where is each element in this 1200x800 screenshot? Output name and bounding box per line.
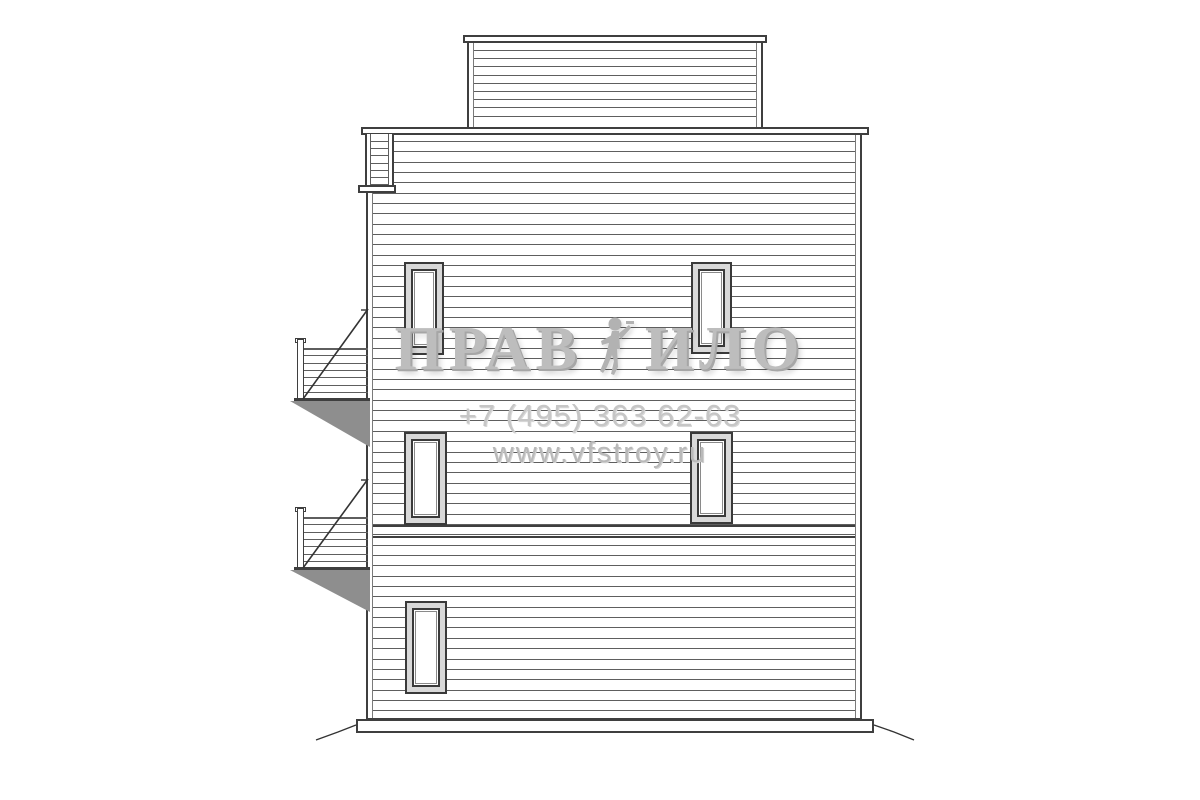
- window-sash: [411, 269, 437, 348]
- siding-line: [373, 358, 855, 359]
- siding-line: [373, 193, 855, 194]
- siding-line: [373, 162, 855, 163]
- balcony-underside-shade: [290, 570, 370, 612]
- siding-line: [373, 182, 855, 183]
- siding-line: [373, 276, 855, 277]
- siding-line: [373, 203, 855, 204]
- corner-trim-right: [756, 42, 757, 128]
- roof-deck-section-cap: [463, 35, 767, 43]
- balcony-rail-line: [304, 561, 368, 562]
- corner-trim-right: [855, 134, 856, 718]
- balcony-post: [297, 508, 304, 570]
- siding-line: [474, 107, 756, 108]
- ladder-ledge: [358, 185, 396, 193]
- siding-line: [474, 58, 756, 59]
- window-sash: [698, 269, 725, 347]
- siding-line: [373, 710, 855, 711]
- balcony-rail-line: [304, 392, 368, 393]
- siding-line: [373, 151, 855, 152]
- ladder-rung: [371, 163, 388, 164]
- siding-line: [373, 234, 855, 235]
- roof-ladder: [365, 134, 394, 190]
- siding-line: [373, 224, 855, 225]
- siding-line: [373, 317, 855, 318]
- window: [690, 432, 733, 524]
- balcony-rail-line: [304, 546, 368, 547]
- ground-line: [316, 725, 356, 740]
- window-sash: [412, 608, 440, 687]
- siding-line: [373, 244, 855, 245]
- siding-line: [373, 534, 855, 535]
- siding-line: [373, 369, 855, 370]
- balcony-underside-shade: [290, 401, 370, 447]
- balcony-rail-line: [304, 348, 368, 350]
- siding-line: [373, 565, 855, 566]
- balcony-rail-line: [304, 539, 368, 540]
- window: [691, 262, 732, 354]
- ladder-rung: [371, 148, 388, 149]
- ladder-rung: [371, 141, 388, 142]
- balcony-rail-line: [304, 363, 368, 364]
- siding-line: [474, 91, 756, 92]
- siding-line: [373, 410, 855, 411]
- siding-line: [474, 50, 756, 51]
- balcony-rail-line: [304, 385, 368, 386]
- siding-line: [373, 255, 855, 256]
- siding-line: [373, 576, 855, 577]
- ladder-rail-left: [370, 134, 371, 190]
- balcony-rail-line: [304, 532, 368, 533]
- siding-line: [373, 379, 855, 380]
- window-sash: [411, 439, 440, 518]
- balcony-rail-line: [304, 377, 368, 378]
- siding-line: [474, 99, 756, 100]
- window: [404, 432, 447, 525]
- ladder-rung: [371, 177, 388, 178]
- balcony-floor: [294, 567, 370, 570]
- roof-deck-section: [467, 42, 763, 128]
- siding-line: [373, 338, 855, 339]
- siding-line: [373, 327, 855, 328]
- balcony-rail-line: [304, 554, 368, 555]
- foundation-base: [356, 719, 874, 733]
- siding-line: [373, 307, 855, 308]
- siding-line: [373, 420, 855, 421]
- ladder-rung: [371, 170, 388, 171]
- balcony-rail-line: [304, 355, 368, 356]
- main-wall-cap: [361, 127, 869, 135]
- siding-line: [373, 596, 855, 597]
- siding-line: [373, 389, 855, 390]
- floor-band-line: [373, 536, 855, 538]
- siding-line: [474, 75, 756, 76]
- floor-band-line: [373, 525, 855, 527]
- window-sash: [697, 439, 726, 517]
- siding-line: [373, 286, 855, 287]
- window: [405, 601, 447, 694]
- siding-line: [373, 296, 855, 297]
- ground-line: [874, 725, 914, 740]
- balcony-post: [297, 339, 304, 401]
- siding-line: [373, 700, 855, 701]
- siding-line: [373, 400, 855, 401]
- balcony-floor: [294, 398, 370, 401]
- siding-line: [474, 116, 756, 117]
- siding-line: [373, 141, 855, 142]
- elevation-drawing: ПРАВ ИЛО +7 (495) 363 62-63 www.vfstroy.…: [0, 0, 1200, 800]
- balcony-rail-line: [304, 517, 368, 519]
- siding-line: [373, 213, 855, 214]
- siding-line: [373, 545, 855, 546]
- siding-line: [373, 172, 855, 173]
- corner-trim-left: [372, 134, 373, 718]
- balcony-rail-line: [304, 370, 368, 371]
- siding-line: [373, 586, 855, 587]
- siding-line: [474, 66, 756, 67]
- ladder-rung: [371, 155, 388, 156]
- siding-line: [474, 83, 756, 84]
- balcony-rail-line: [304, 524, 368, 525]
- siding-line: [373, 265, 855, 266]
- ladder-rail-right: [388, 134, 389, 190]
- siding-line: [373, 555, 855, 556]
- siding-line: [373, 348, 855, 349]
- window: [404, 262, 444, 355]
